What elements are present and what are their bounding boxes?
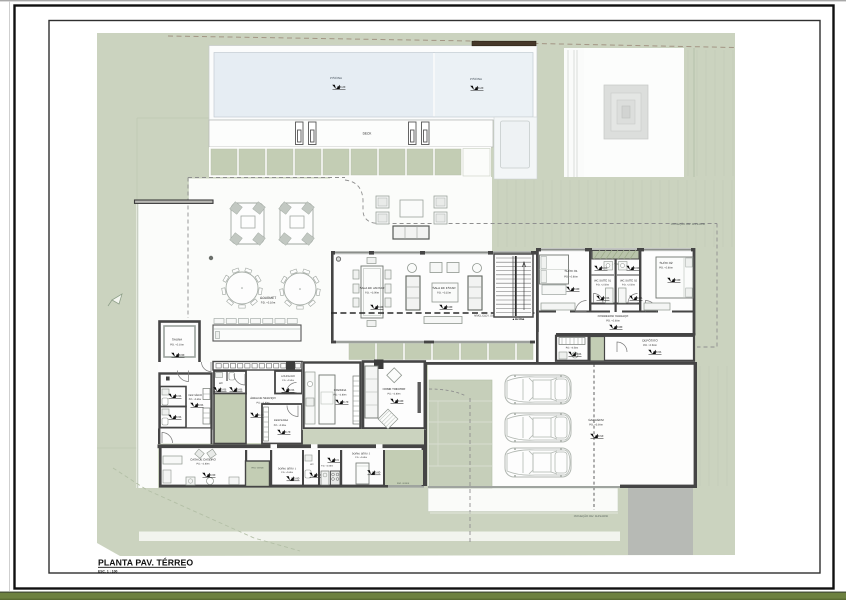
svg-text:P.D. ≈2.50m: P.D. ≈2.50m: [566, 347, 579, 350]
svg-text:P.D. ≈2.60m: P.D. ≈2.60m: [606, 319, 620, 322]
svg-text:PROJEÇÃO PAV. SUPERIOR: PROJEÇÃO PAV. SUPERIOR: [671, 222, 706, 226]
svg-text:SALA DE JANTAR: SALA DE JANTAR: [360, 286, 386, 290]
svg-text:P.D. ≈2.50m: P.D. ≈2.50m: [282, 379, 294, 382]
svg-text:100.80: 100.80: [571, 287, 580, 291]
svg-text:▲Acima: ▲Acima: [512, 317, 525, 321]
svg-text:P.D. ≈2.50m: P.D. ≈2.50m: [321, 465, 333, 468]
svg-text:100.60: 100.60: [176, 353, 185, 357]
svg-text:PROJEÇÃO PAV. SUPERIOR: PROJEÇÃO PAV. SUPERIOR: [574, 514, 609, 518]
svg-text:100.50: 100.50: [595, 434, 604, 438]
svg-text:100.65: 100.65: [173, 394, 182, 398]
svg-text:SUÍTE 01: SUÍTE 01: [564, 269, 577, 273]
svg-text:100.65: 100.65: [286, 388, 295, 392]
svg-text:CORREDOR TERRAÇO: CORREDOR TERRAÇO: [598, 314, 630, 318]
svg-text:PLANTA PAV. TÉRREO: PLANTA PAV. TÉRREO: [98, 558, 193, 568]
svg-text:HOME THEATER: HOME THEATER: [383, 387, 406, 391]
svg-text:PISCINA: PISCINA: [330, 76, 342, 80]
svg-text:100.6: 100.6: [332, 458, 339, 462]
svg-text:SALA DE ESTAR: SALA DE ESTAR: [432, 286, 456, 290]
svg-text:DORM. SERV. 2: DORM. SERV. 2: [352, 453, 371, 456]
svg-text:P.D. ≈2.80m: P.D. ≈2.80m: [334, 393, 347, 396]
svg-text:100.80: 100.80: [614, 325, 623, 329]
svg-text:DESPENSA: DESPENSA: [274, 419, 288, 422]
svg-text:100.65: 100.65: [173, 415, 182, 419]
svg-text:100.65: 100.65: [653, 350, 662, 354]
svg-text:COZINHA: COZINHA: [334, 388, 347, 392]
svg-text:P.D. ≈2.60m: P.D. ≈2.60m: [355, 456, 367, 459]
svg-text:PRG. VERDE: PRG. VERDE: [251, 467, 264, 470]
svg-text:LOUCEIRO: LOUCEIRO: [281, 375, 295, 378]
svg-text:GARAGEM: GARAGEM: [588, 418, 604, 422]
svg-text:DECK: DECK: [363, 132, 373, 136]
svg-text:P.D. ≈2.50m: P.D. ≈2.50m: [596, 283, 609, 286]
svg-text:100.20: 100.20: [337, 85, 346, 89]
svg-text:P.D. ≈3.10m: P.D. ≈3.10m: [261, 302, 276, 305]
svg-text:100.70: 100.70: [340, 400, 349, 404]
svg-text:P.D. ≈2.60m: P.D. ≈2.60m: [189, 398, 202, 401]
svg-text:ESC. 1 : 100: ESC. 1 : 100: [98, 570, 118, 574]
svg-text:GOURMET: GOURMET: [260, 296, 276, 300]
svg-text:100.80: 100.80: [672, 278, 681, 282]
svg-text:P.D. ≈3.15m: P.D. ≈3.15m: [437, 291, 451, 294]
svg-text:PISCINA: PISCINA: [470, 77, 482, 81]
svg-text:CASA DE CASEIRO: CASA DE CASEIRO: [190, 458, 216, 462]
svg-text:P.D. ≈2.10m: P.D. ≈2.10m: [170, 343, 184, 346]
svg-text:SUÍTE 02: SUÍTE 02: [659, 261, 672, 265]
svg-text:P.D. ≈2.50m: P.D. ≈2.50m: [643, 344, 657, 347]
svg-text:VESTIÁRIO: VESTIÁRIO: [188, 393, 202, 397]
svg-text:P.D. ≈2.60m: P.D. ≈2.60m: [197, 463, 210, 466]
svg-text:P.D. ≈2.50m: P.D. ≈2.50m: [274, 424, 287, 427]
svg-text:P.D. ≈3.00m: P.D. ≈3.00m: [365, 291, 379, 294]
svg-text:100.6: 100.6: [314, 473, 321, 477]
svg-text:P.D. ≈2.80m: P.D. ≈2.80m: [564, 275, 578, 278]
svg-text:P.D. ≈2.80m: P.D. ≈2.80m: [659, 266, 673, 269]
svg-text:WC SUÍTE 02: WC SUÍTE 02: [620, 279, 637, 283]
svg-text:P.D. ≈2.50m: P.D. ≈2.50m: [622, 283, 635, 286]
svg-text:100.60: 100.60: [291, 476, 300, 480]
svg-text:ÁREA DE SERVIÇO: ÁREA DE SERVIÇO: [250, 396, 276, 400]
svg-text:100.70: 100.70: [282, 430, 291, 434]
svg-text:DEPÓSITO: DEPÓSITO: [642, 339, 658, 343]
svg-text:WC: WC: [219, 382, 223, 385]
svg-text:100.80: 100.80: [375, 305, 384, 309]
svg-text:DORM. SERV. 1: DORM. SERV. 1: [278, 468, 297, 471]
svg-text:PRG. VERDE: PRG. VERDE: [397, 482, 410, 485]
svg-text:P.D. ≈2.60m: P.D. ≈2.60m: [281, 471, 293, 474]
svg-text:100.80: 100.80: [444, 305, 453, 309]
svg-text:P.D. ≈2.80m: P.D. ≈2.80m: [388, 392, 401, 395]
svg-text:100.65: 100.65: [599, 266, 608, 270]
svg-text:100.65: 100.65: [218, 387, 227, 391]
svg-text:100.60: 100.60: [207, 473, 216, 477]
svg-text:100.65: 100.65: [631, 266, 640, 270]
svg-text:WC SUÍTE 01: WC SUÍTE 01: [594, 279, 611, 283]
svg-text:100.65: 100.65: [601, 296, 610, 300]
svg-text:P.D. ≈3.00m: P.D. ≈3.00m: [589, 423, 603, 426]
svg-text:SAUNA: SAUNA: [172, 338, 182, 342]
svg-text:100.65: 100.65: [195, 403, 204, 407]
svg-text:100.20: 100.20: [475, 86, 484, 90]
svg-text:100.60: 100.60: [372, 470, 381, 474]
svg-text:WC: WC: [310, 463, 314, 466]
svg-text:100.65: 100.65: [634, 296, 643, 300]
svg-text:100.65: 100.65: [234, 387, 243, 391]
svg-text:100.65: 100.65: [573, 352, 582, 356]
svg-text:100.80: 100.80: [395, 399, 404, 403]
